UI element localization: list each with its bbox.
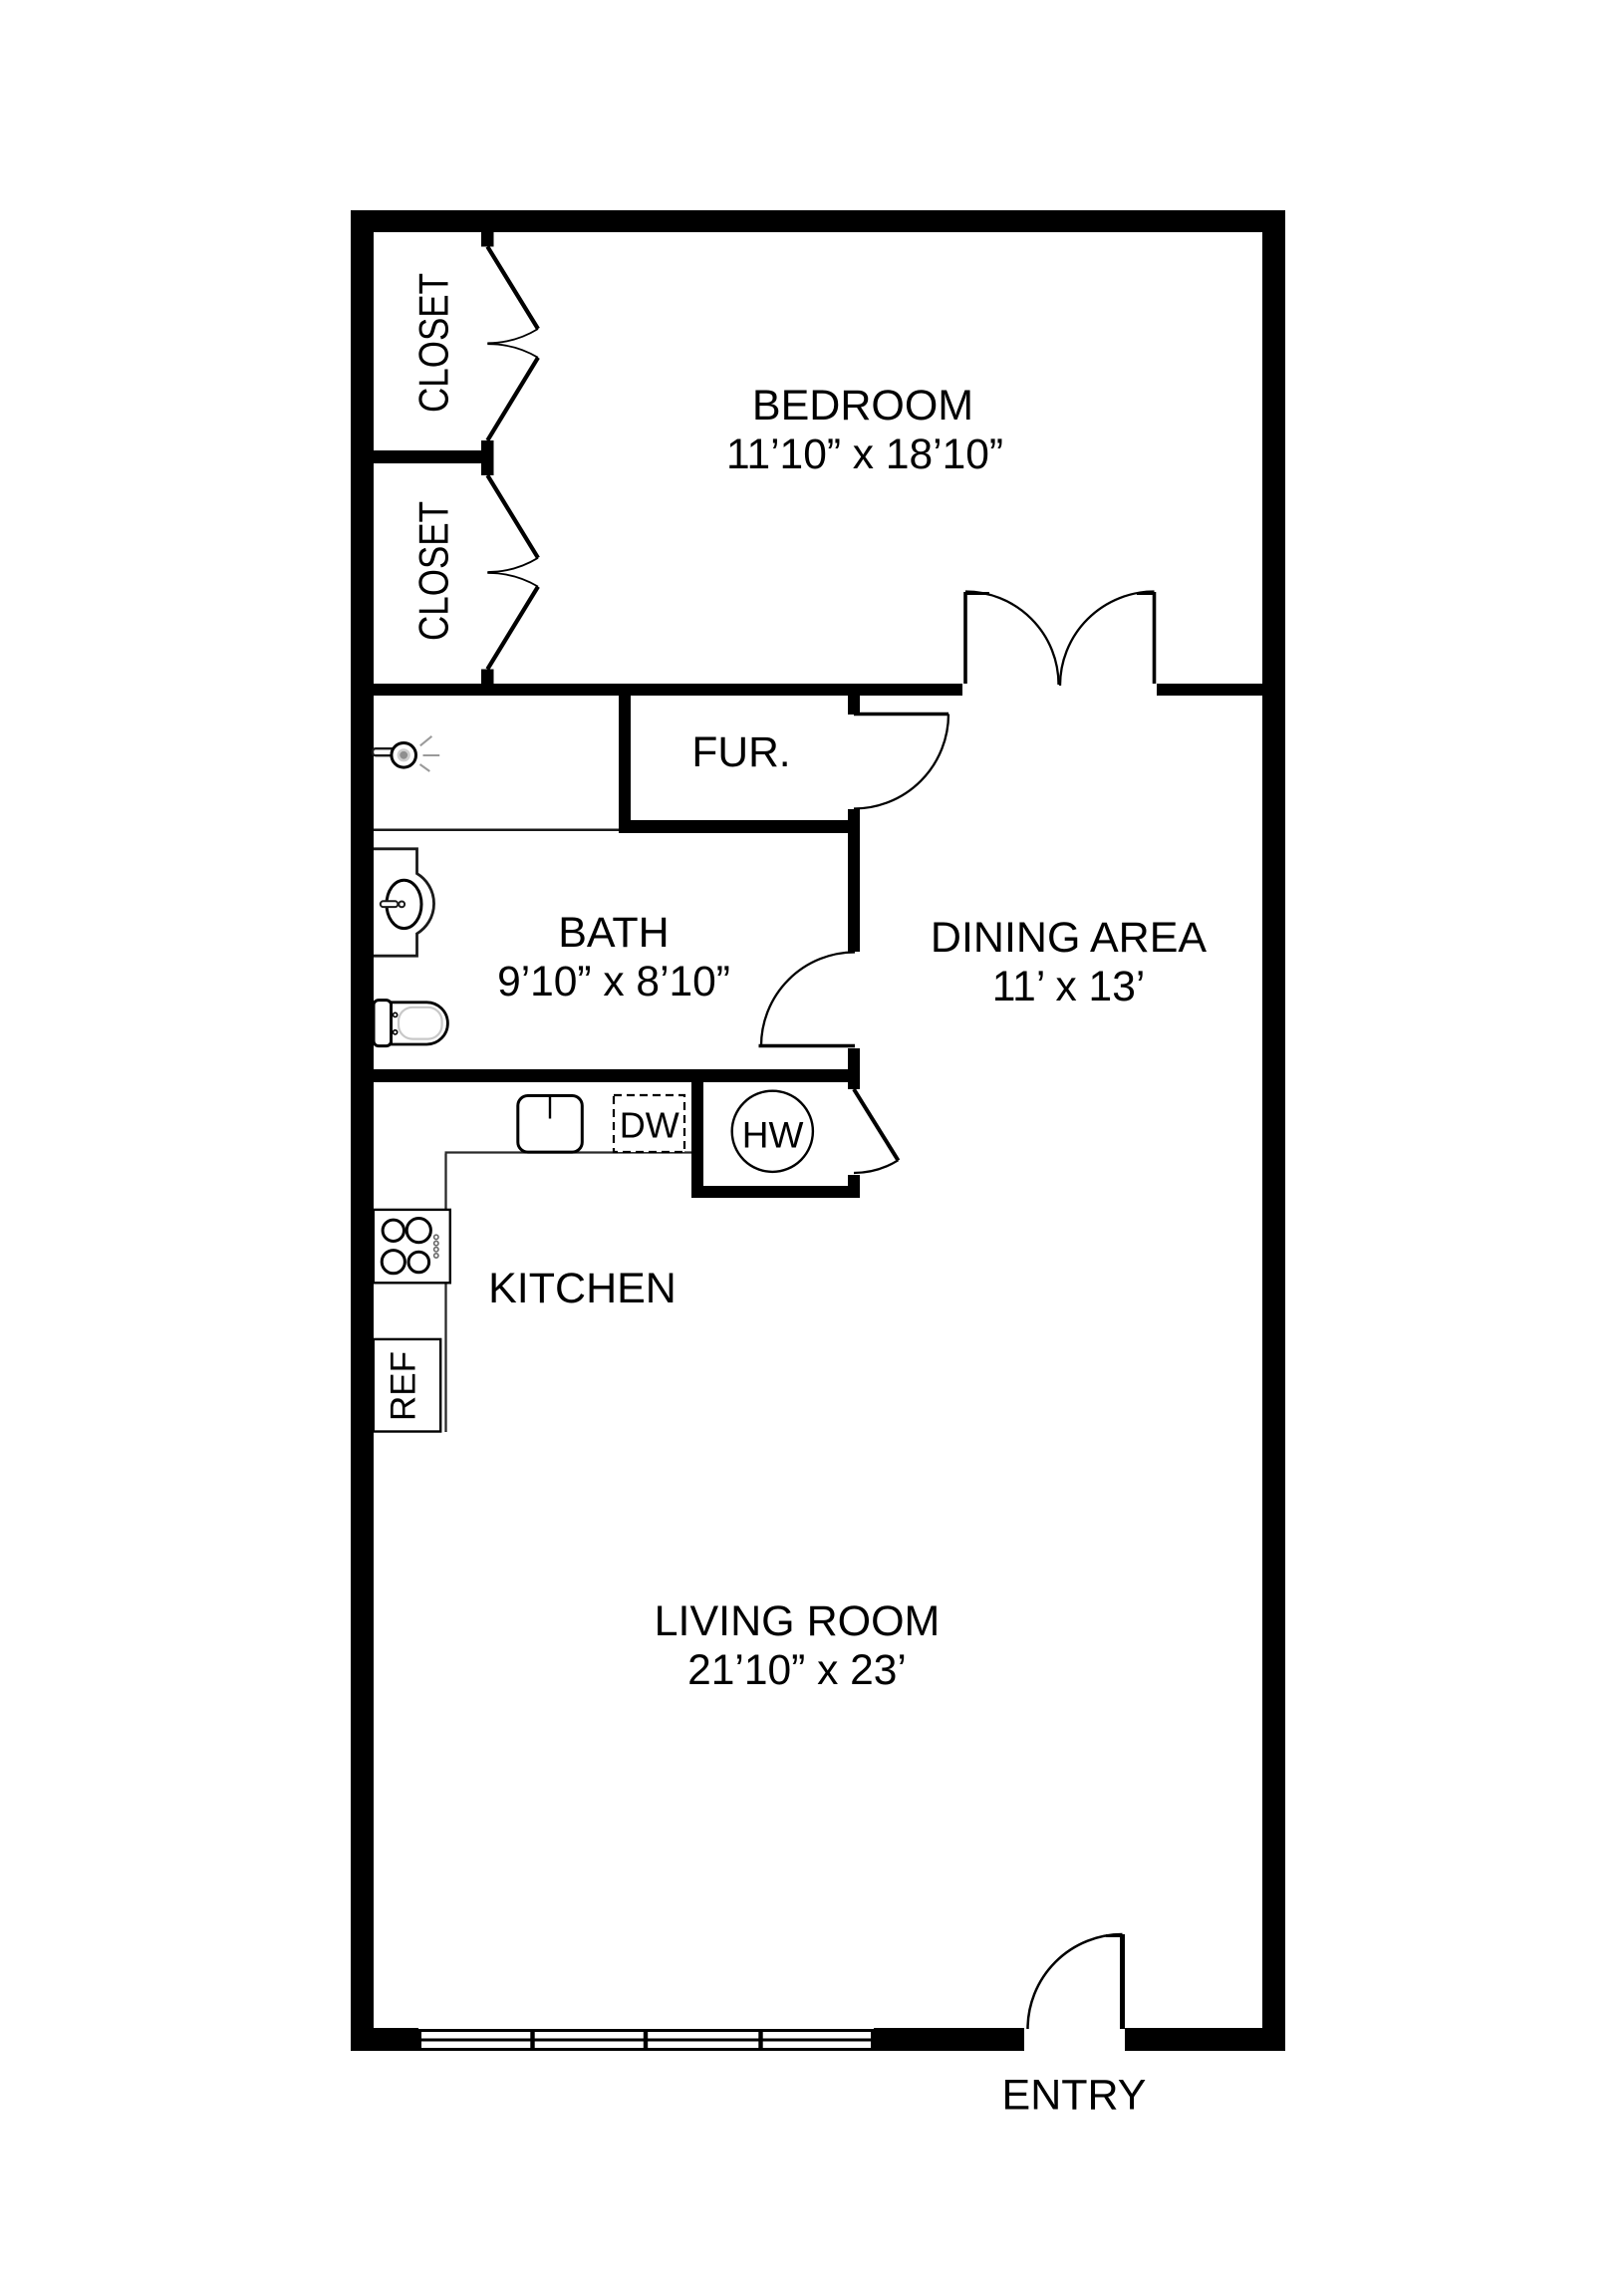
svg-text:FUR.: FUR. bbox=[691, 729, 790, 776]
svg-text:KITCHEN: KITCHEN bbox=[488, 1265, 676, 1312]
svg-text:BATH: BATH bbox=[558, 909, 670, 957]
svg-text:HW: HW bbox=[742, 1114, 804, 1155]
svg-text:LIVING ROOM: LIVING ROOM bbox=[655, 1597, 941, 1645]
svg-text:11’ x 13’: 11’ x 13’ bbox=[992, 964, 1146, 1010]
svg-text:21’10” x 23’: 21’10” x 23’ bbox=[687, 1647, 907, 1694]
svg-text:DINING AREA: DINING AREA bbox=[931, 914, 1207, 962]
svg-text:9’10” x 8’10”: 9’10” x 8’10” bbox=[497, 959, 730, 1005]
svg-text:CLOSET: CLOSET bbox=[410, 501, 457, 641]
svg-text:11’10” x 18’10”: 11’10” x 18’10” bbox=[726, 431, 1003, 478]
svg-text:ENTRY: ENTRY bbox=[1002, 2072, 1147, 2120]
svg-text:CLOSET: CLOSET bbox=[410, 273, 457, 413]
svg-text:REF: REF bbox=[385, 1351, 423, 1421]
svg-text:DW: DW bbox=[620, 1104, 679, 1145]
svg-text:BEDROOM: BEDROOM bbox=[752, 382, 973, 430]
